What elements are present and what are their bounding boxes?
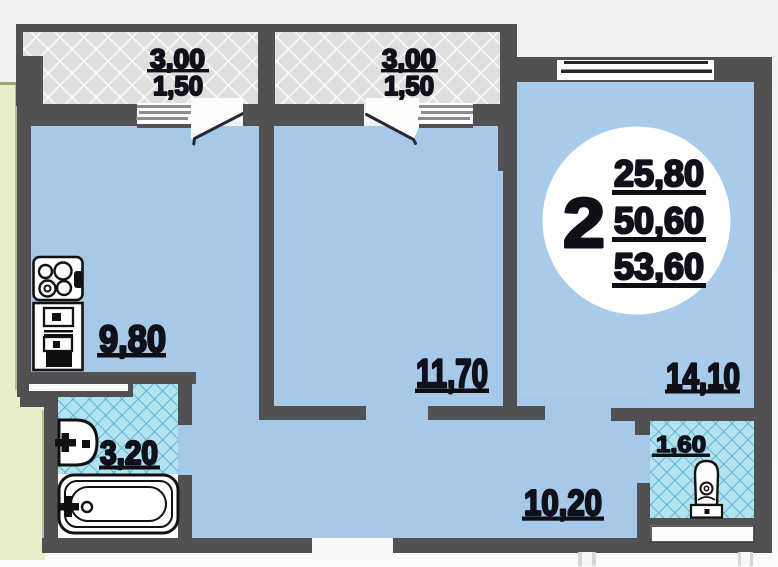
svg-text:3,20: 3,20 bbox=[100, 434, 158, 471]
svg-text:2: 2 bbox=[563, 184, 605, 262]
svg-text:1,50: 1,50 bbox=[384, 71, 434, 101]
svg-text:53,60: 53,60 bbox=[614, 246, 704, 287]
svg-text:50,60: 50,60 bbox=[614, 200, 704, 241]
svg-text:25,80: 25,80 bbox=[614, 153, 704, 194]
svg-text:1,50: 1,50 bbox=[153, 71, 203, 101]
svg-text:1,60: 1,60 bbox=[656, 431, 706, 457]
